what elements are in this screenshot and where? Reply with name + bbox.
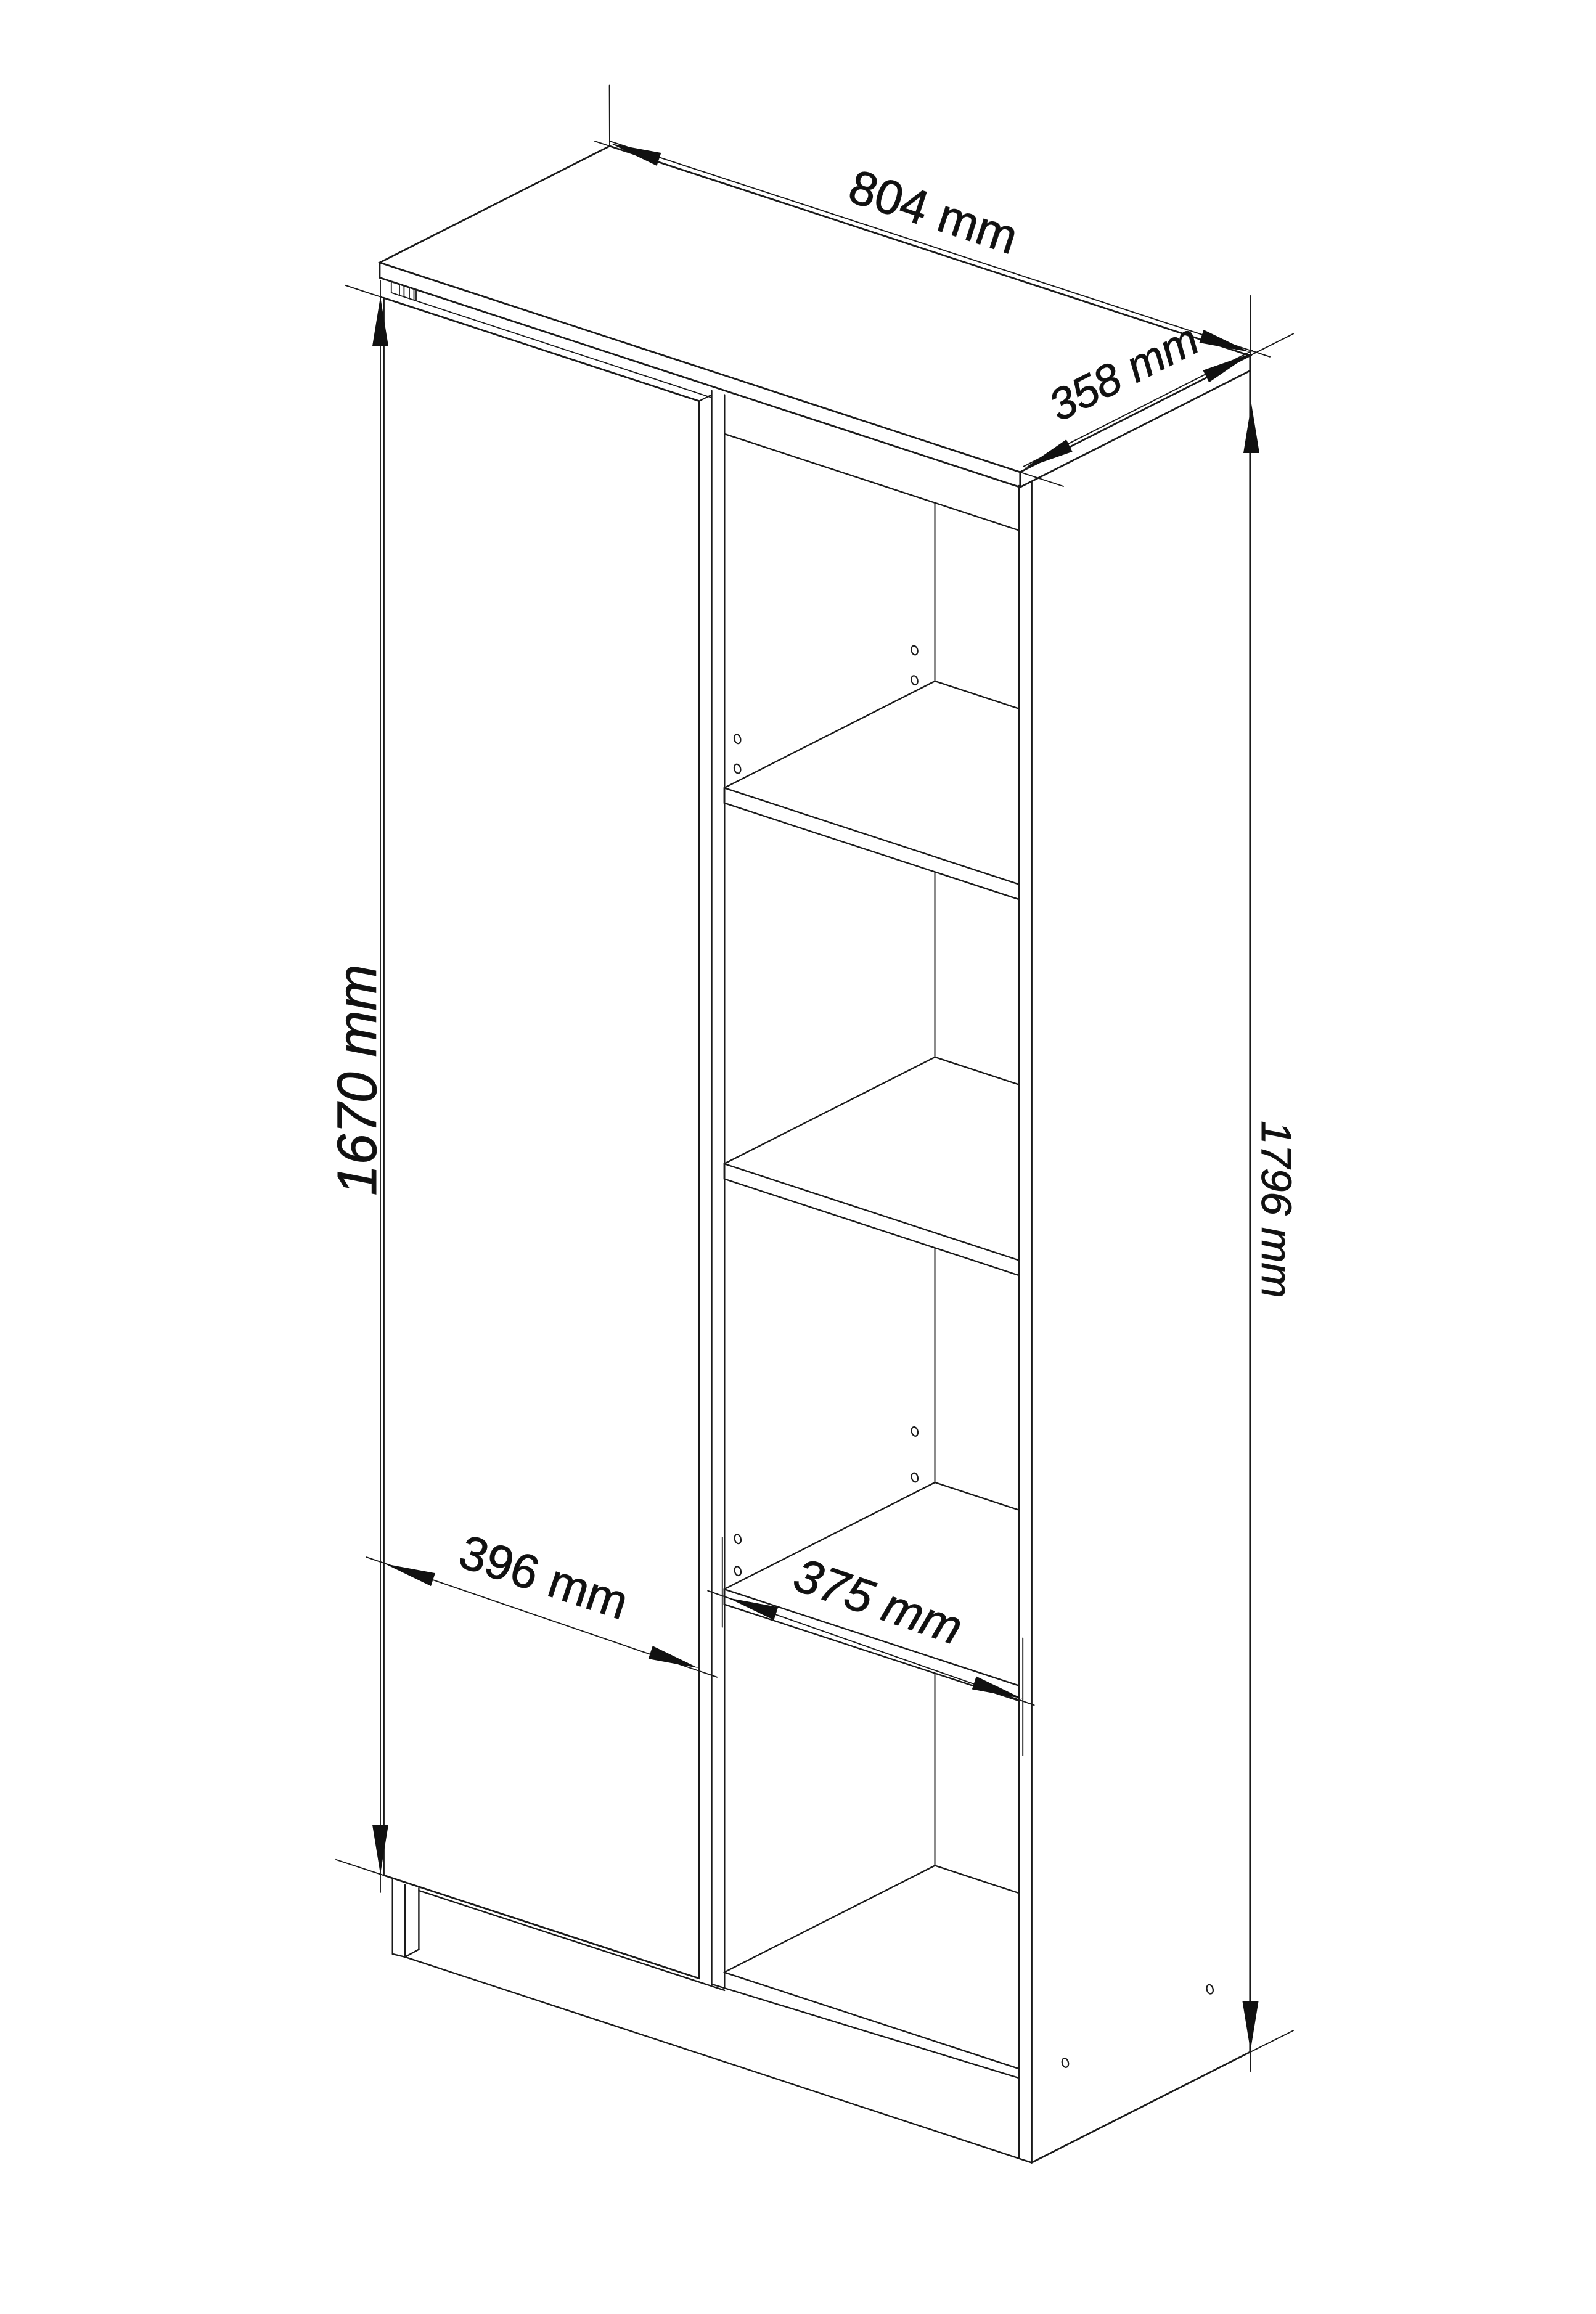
svg-text:375 mm: 375 mm <box>787 1547 969 1655</box>
svg-text:1670 mm: 1670 mm <box>327 964 388 1195</box>
svg-text:396 mm: 396 mm <box>453 1524 635 1630</box>
svg-text:804 mm: 804 mm <box>843 159 1025 264</box>
svg-text:1796 mm: 1796 mm <box>1253 1121 1300 1298</box>
svg-text:358 mm: 358 mm <box>1041 314 1206 431</box>
